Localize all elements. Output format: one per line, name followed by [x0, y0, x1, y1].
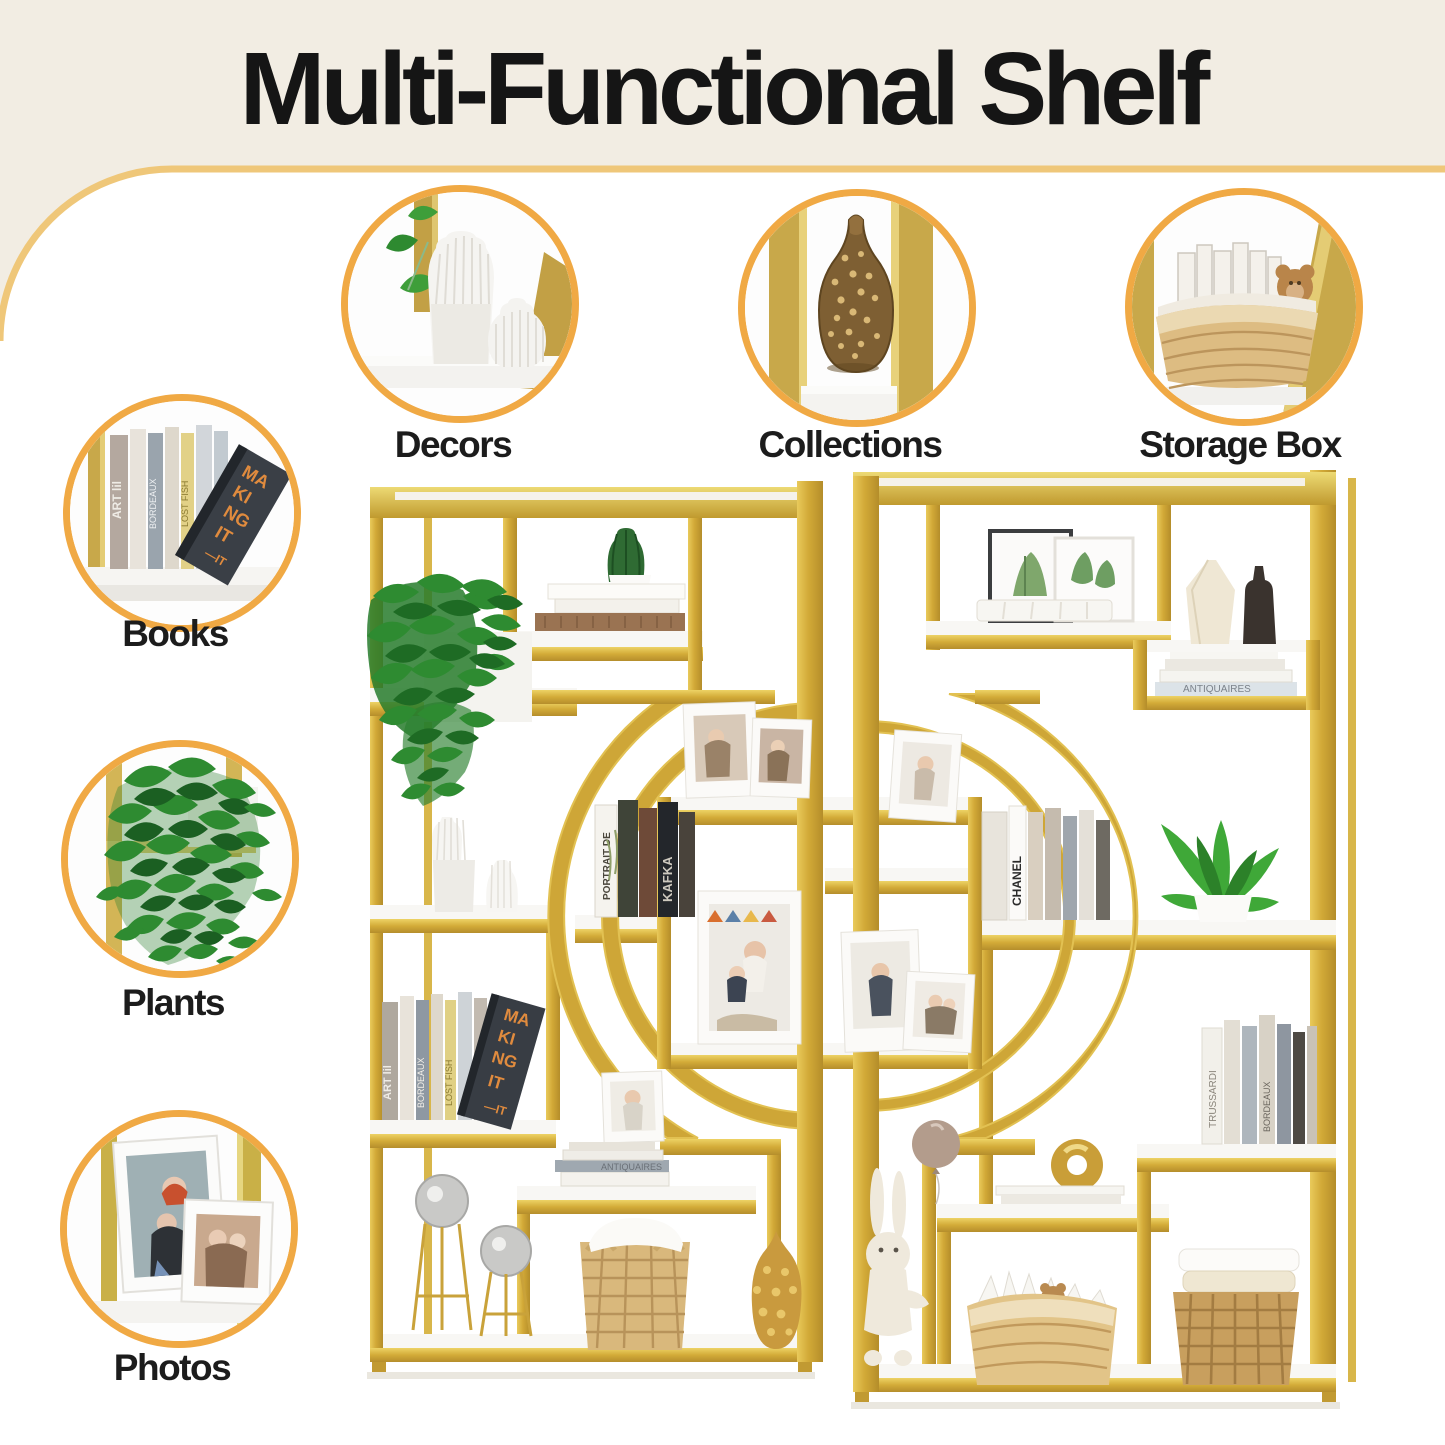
svg-text:LOST FISH: LOST FISH: [444, 1060, 454, 1106]
svg-text:KAFKA: KAFKA: [660, 856, 675, 902]
svg-text:ANTIQUAIRES: ANTIQUAIRES: [601, 1162, 662, 1172]
svg-text:ART lil: ART lil: [382, 1065, 394, 1100]
svg-text:CHANEL: CHANEL: [1010, 856, 1024, 906]
svg-text:BORDEAUX: BORDEAUX: [1262, 1081, 1272, 1132]
svg-text:LOST FISH: LOST FISH: [180, 481, 190, 527]
svg-text:ART lil: ART lil: [110, 481, 124, 519]
svg-text:BORDEAUX: BORDEAUX: [416, 1057, 426, 1108]
svg-text:ANTIQUAIRES: ANTIQUAIRES: [1183, 684, 1251, 695]
svg-text:BORDEAUX: BORDEAUX: [148, 478, 158, 529]
svg-text:TRUSSARDI: TRUSSARDI: [1208, 1070, 1219, 1128]
